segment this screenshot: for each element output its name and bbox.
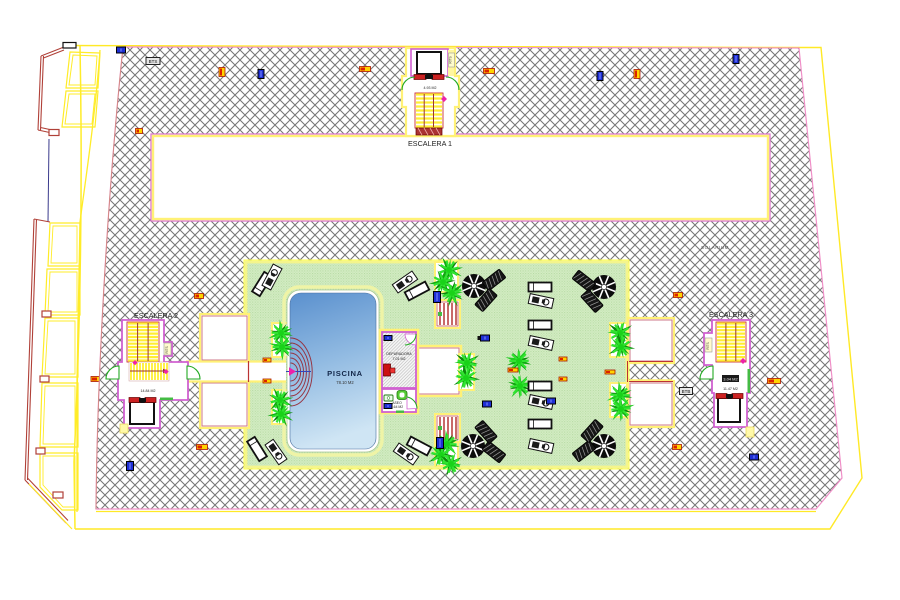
svg-text:BTB: BTB [682,389,691,394]
svg-text:PISCINA: PISCINA [327,369,363,378]
svg-text:4.93 M2: 4.93 M2 [424,86,437,90]
svg-text:RITS: RITS [165,346,169,353]
svg-text:2.64 M2: 2.64 M2 [391,405,403,409]
svg-text:RITS: RITS [449,56,453,63]
svg-text:7.01 M2: 7.01 M2 [393,357,406,361]
svg-text:14.84 M2: 14.84 M2 [141,389,156,393]
svg-text:ESCALERA 2: ESCALERA 2 [134,311,178,320]
svg-text:ESCALERA 1: ESCALERA 1 [408,139,452,148]
svg-text:BTS: BTS [149,59,158,64]
svg-text:RITS: RITS [706,342,710,349]
svg-text:11.47 M2: 11.47 M2 [723,387,738,391]
svg-text:DEPURADORA: DEPURADORA [386,352,412,356]
svg-text:ESCALERA 3: ESCALERA 3 [709,310,753,319]
svg-text:78.10 M2: 78.10 M2 [336,380,354,385]
svg-text:SOLARIUM: SOLARIUM [701,245,729,250]
svg-text:3.04 M2: 3.04 M2 [723,377,738,382]
